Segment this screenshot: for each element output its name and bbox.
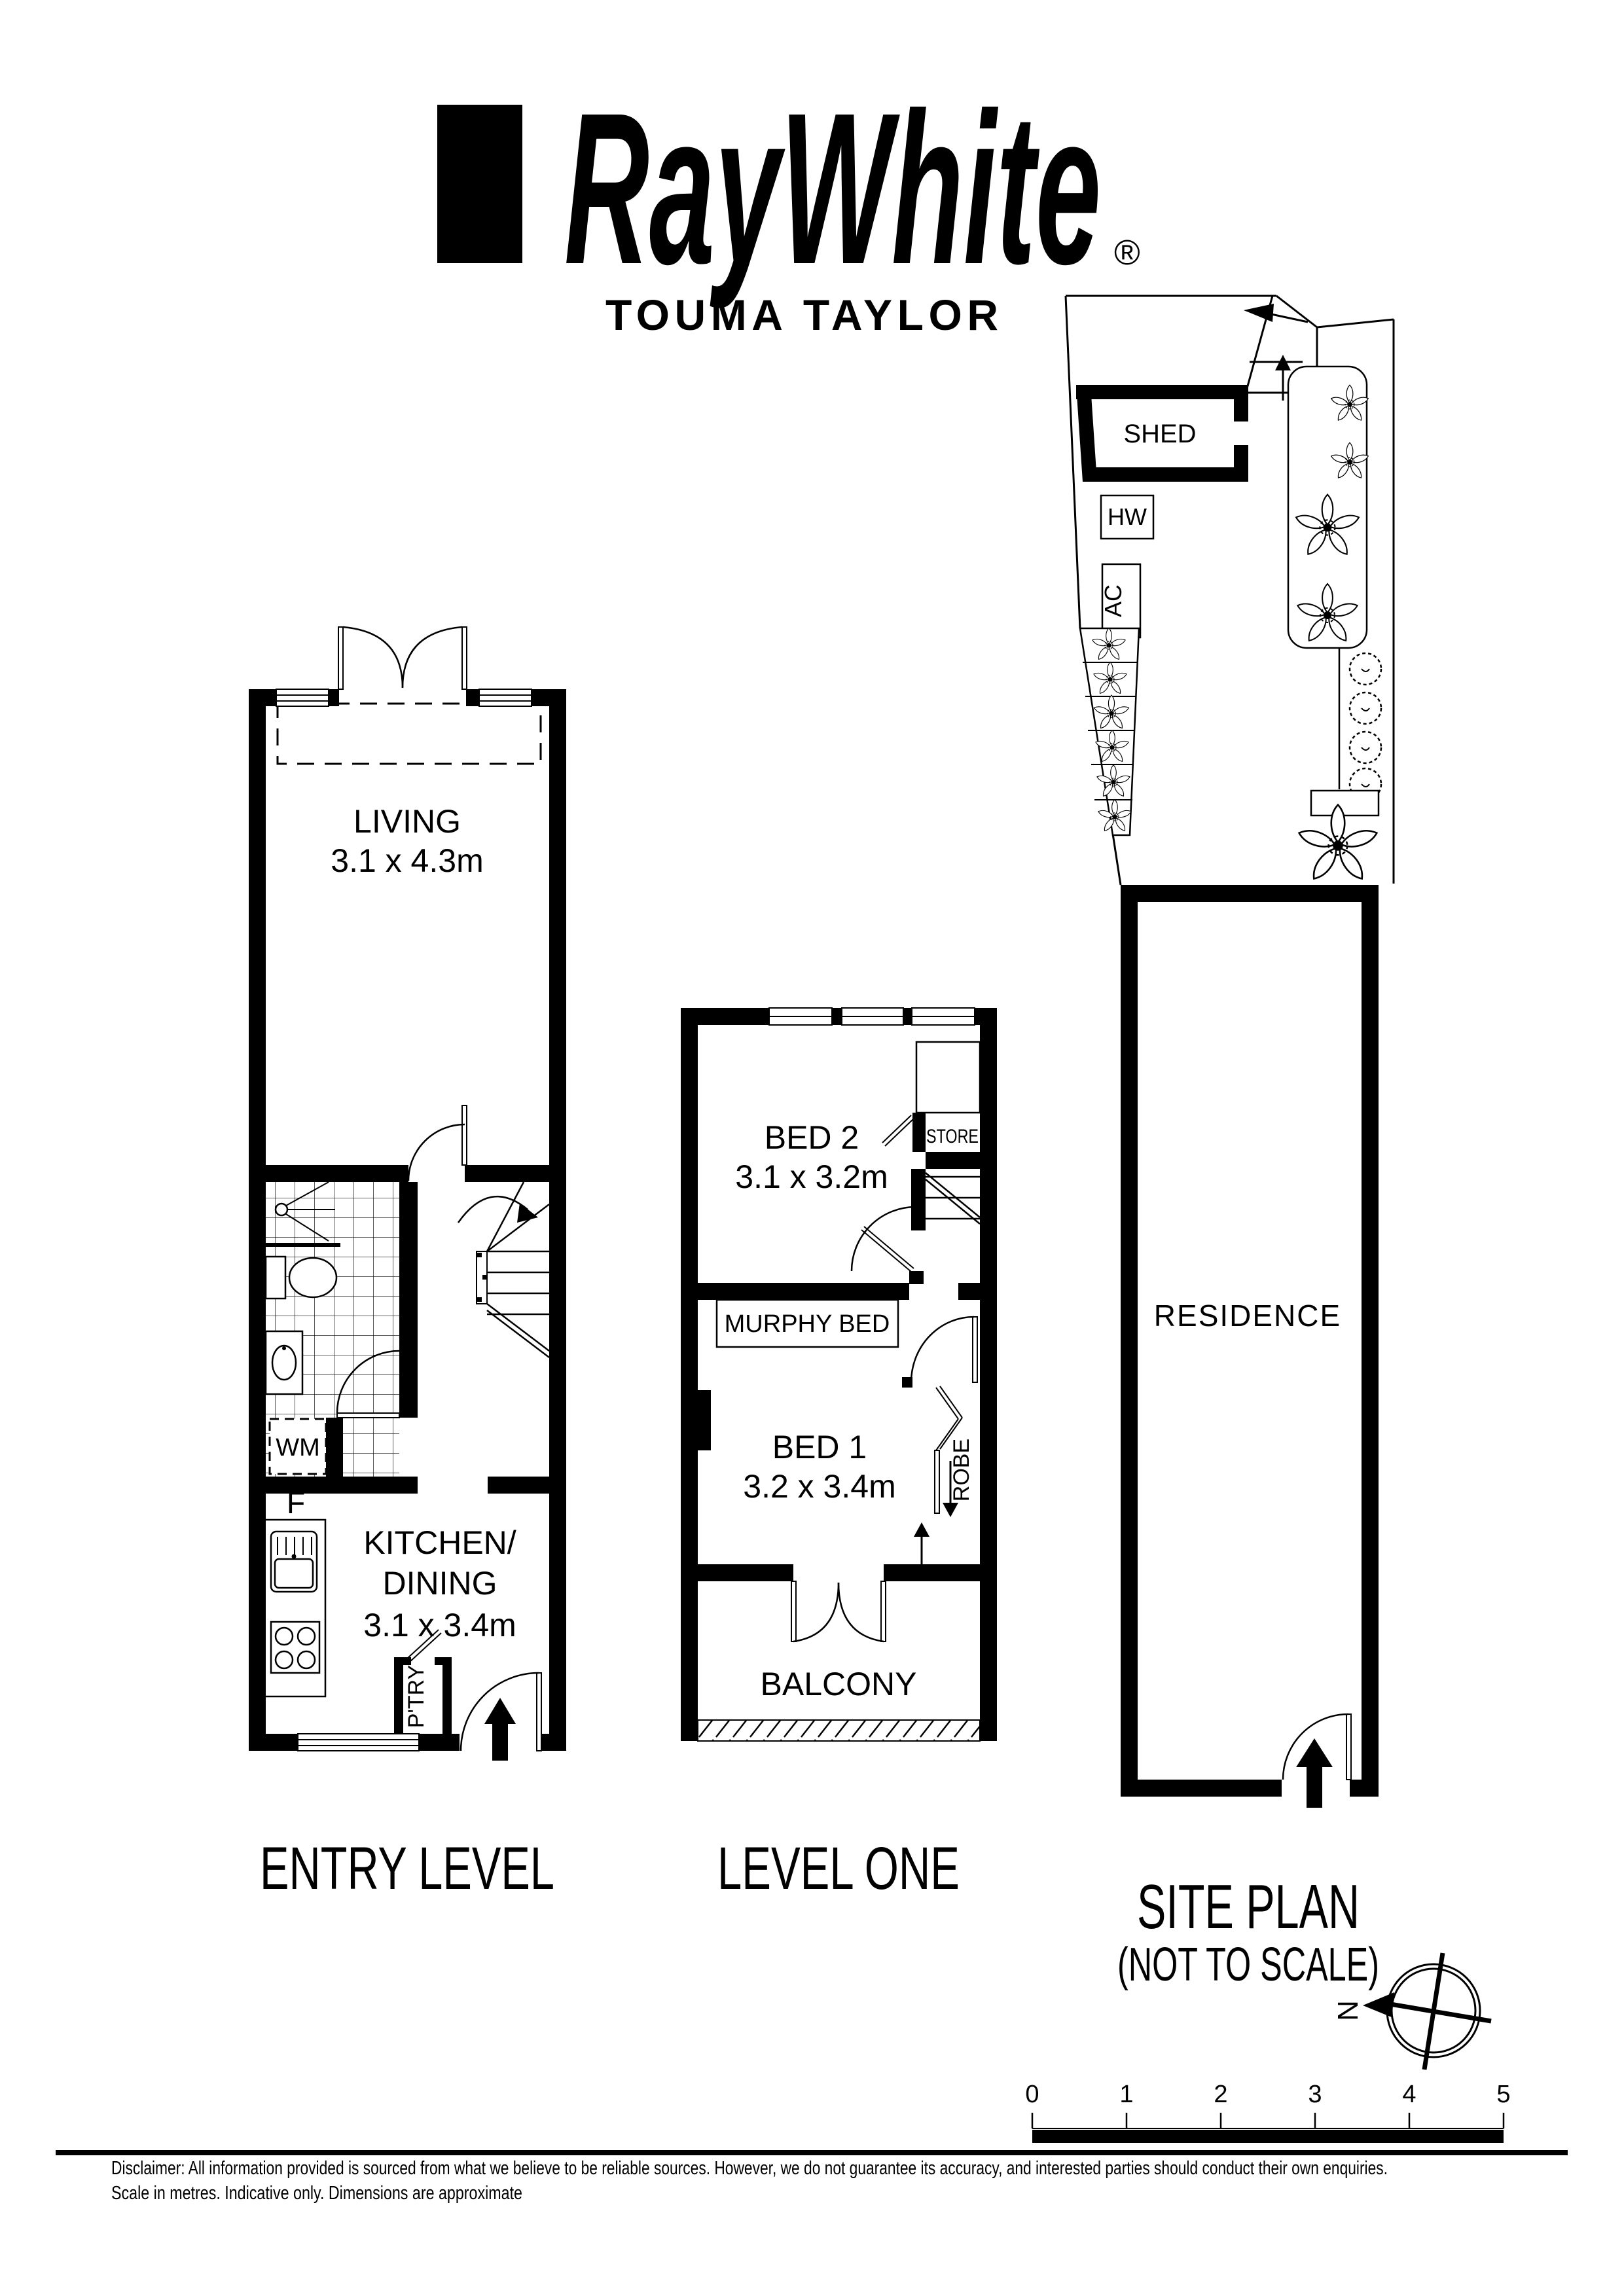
kitchen-label-line2: DINING [383, 1565, 497, 1602]
fridge-label: F [287, 1486, 305, 1520]
bed1-dims: 3.2 x 3.4m [743, 1468, 895, 1505]
scale-tick-2: 2 [1214, 2081, 1227, 2108]
bed2-dims: 3.1 x 3.2m [735, 1158, 888, 1195]
robe-label: ROBE [949, 1439, 974, 1501]
pantry-label: P'TRY [404, 1665, 429, 1729]
site-plan-sublabel: (NOT TO SCALE) [1117, 1939, 1379, 1991]
living-door [408, 1105, 467, 1181]
pantry: P'TRY [394, 1630, 452, 1734]
residence: RESIDENCE [1121, 885, 1379, 1808]
murphy-bed: MURPHY BED [717, 1300, 898, 1347]
gate-arrow-icon [1244, 304, 1274, 322]
raywhite-logo-text: RayWhite [564, 67, 1101, 310]
flower-icon [1297, 805, 1379, 883]
balcony-balustrade [698, 1720, 980, 1741]
shed-label: SHED [1123, 420, 1196, 448]
entry-arrow [484, 1698, 516, 1761]
disclaimer-line1: Disclaimer: All information provided is … [111, 2158, 1388, 2179]
basin-icon [266, 1331, 302, 1394]
left-garden-bed [1080, 628, 1139, 835]
residence-entry-arrow [1296, 1738, 1333, 1808]
site-plan-label: SITE PLAN [1137, 1872, 1360, 1942]
bed2-label: BED 2 [765, 1119, 859, 1156]
bush-icon [1350, 653, 1381, 685]
garden-step [1311, 791, 1379, 816]
north-label: N [1332, 2000, 1364, 2021]
raywhite-logo-mark [437, 105, 522, 263]
bed2-door [852, 1207, 916, 1272]
level-one-stairs [926, 1173, 980, 1224]
french-doors [338, 627, 467, 689]
kitchen-window [298, 1734, 419, 1751]
bush-icon [1350, 692, 1381, 724]
bed1-label: BED 1 [772, 1429, 867, 1465]
hot-water-label: HW [1108, 503, 1147, 530]
entry-stairs [458, 1182, 549, 1357]
right-garden-bed [1288, 367, 1381, 883]
stair-up-arrow [914, 1522, 929, 1567]
balcony-label: BALCONY [761, 1666, 917, 1702]
cooktop-icon [271, 1622, 319, 1673]
store-cupboard: STORE [882, 1042, 980, 1147]
entry-level-plan: WM F [249, 627, 566, 1902]
air-conditioner-unit: AC [1100, 564, 1140, 637]
living-label: LIVING [353, 803, 461, 840]
level-one-walls [681, 1008, 997, 1741]
level-one-label: LEVEL ONE [717, 1835, 960, 1902]
murphy-bed-label: MURPHY BED [725, 1310, 890, 1338]
bed2-windows [769, 1008, 975, 1025]
site-plan: SHED HW AC [1066, 296, 1394, 1991]
north-arrow-icon [1363, 1992, 1394, 2017]
level-one-plan: STORE MURPHY BED [681, 1008, 997, 1902]
kitchen-label-line1: KITCHEN/ [363, 1524, 516, 1561]
balcony-doors [791, 1581, 886, 1641]
sink-icon [271, 1532, 317, 1592]
scale-tick-4: 4 [1402, 2081, 1416, 2108]
disclaimer-line2: Scale in metres. Indicative only. Dimens… [111, 2183, 522, 2204]
air-conditioner-label: AC [1100, 584, 1127, 617]
toilet-icon [266, 1257, 336, 1299]
scale-tick-0: 0 [1025, 2081, 1039, 2108]
registered-trademark-icon: ® [1114, 233, 1140, 272]
header: RayWhite ® TOUMA TAYLOR [437, 67, 1140, 339]
scale-tick-5: 5 [1496, 2081, 1510, 2108]
living-dims: 3.1 x 4.3m [331, 842, 483, 879]
washing-machine-box: WM [270, 1419, 326, 1474]
robe: ROBE [914, 1386, 974, 1567]
shed: SHED [1076, 385, 1248, 482]
floorplan-page: RayWhite ® TOUMA TAYLOR [0, 0, 1624, 2296]
hot-water-unit: HW [1101, 495, 1153, 539]
scale-tick-1: 1 [1119, 2081, 1133, 2108]
living-dashed-outline [278, 704, 541, 764]
kitchen-dims: 3.1 x 3.4m [363, 1607, 516, 1643]
footer-divider [56, 2150, 1568, 2155]
stairs-direction-arrow [517, 1203, 538, 1223]
store-label: STORE [926, 1126, 979, 1147]
footer: Disclaimer: All information provided is … [56, 2150, 1568, 2204]
entry-level-label: ENTRY LEVEL [260, 1835, 554, 1902]
scale-bar-band [1032, 2130, 1504, 2143]
washing-machine-label: WM [276, 1434, 320, 1462]
bush-icon [1350, 732, 1381, 763]
bed1-door [911, 1317, 977, 1382]
scale-bar: 0 1 2 3 4 5 [1025, 2081, 1510, 2143]
scale-tick-3: 3 [1308, 2081, 1322, 2108]
residence-label: RESIDENCE [1154, 1299, 1341, 1333]
